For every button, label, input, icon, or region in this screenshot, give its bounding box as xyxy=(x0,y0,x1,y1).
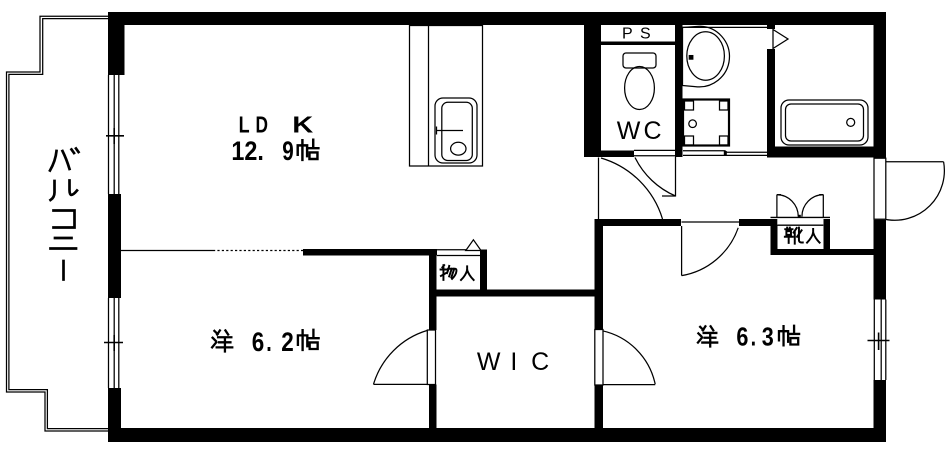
svg-text:.: . xyxy=(266,327,272,357)
svg-text:2: 2 xyxy=(281,327,294,357)
svg-text:P: P xyxy=(622,26,633,43)
svg-text:K: K xyxy=(292,111,313,137)
svg-text:6: 6 xyxy=(252,327,264,357)
svg-text:S: S xyxy=(640,26,651,43)
svg-text:6: 6 xyxy=(736,321,748,351)
svg-text:L: L xyxy=(239,111,250,137)
svg-text:9: 9 xyxy=(282,136,294,166)
svg-text:3: 3 xyxy=(762,321,774,351)
svg-text:I: I xyxy=(510,348,517,376)
svg-text:D: D xyxy=(256,111,269,137)
svg-text:W: W xyxy=(477,348,501,376)
svg-text:.: . xyxy=(751,321,757,351)
svg-text:W: W xyxy=(617,117,641,145)
svg-text:C: C xyxy=(643,117,661,145)
svg-text:C: C xyxy=(531,348,549,376)
svg-text:12.: 12. xyxy=(231,136,264,166)
